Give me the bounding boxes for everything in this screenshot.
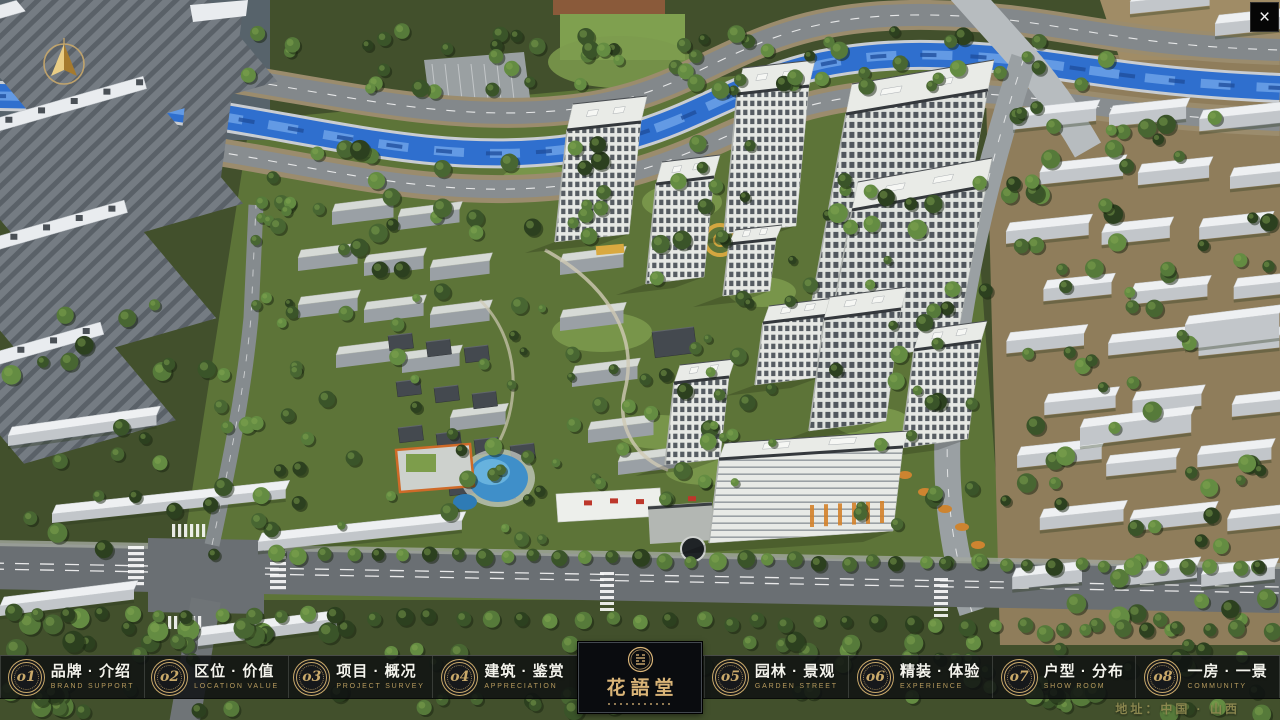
- nav-item-subtitle: LOCATION VALUE: [194, 683, 279, 690]
- nav-item-number: o1: [17, 669, 36, 685]
- aerial-masterplan-render: [0, 0, 1280, 720]
- nav-item-number: o7: [1010, 669, 1029, 685]
- nav-item-title: 项目 · 概况: [336, 664, 416, 681]
- nav-item-number-badge: o5: [715, 662, 746, 693]
- nav-item-title: 一房 · 一景: [1187, 664, 1267, 681]
- nav-item-text: 区位 · 价值 LOCATION VALUE: [194, 664, 279, 691]
- nav-item-7[interactable]: o7 户型 · 分布 SHOW ROOM: [992, 656, 1136, 698]
- nav-item-title: 区位 · 价值: [194, 664, 274, 681]
- nav-group-left: o1 品牌 · 介绍 BRAND SUPPORT o2 区位 · 价值 LOCA…: [0, 656, 576, 698]
- nav-group-right: o5 园林 · 景观 GARDEN STREET o6 精装 · 体验 EXPE…: [704, 656, 1280, 698]
- nav-item-5[interactable]: o5 园林 · 景观 GARDEN STREET: [704, 656, 848, 698]
- nav-item-title: 精装 · 体验: [900, 664, 980, 681]
- nav-item-4[interactable]: o4 建筑 · 鉴赏 APPRECIATION: [432, 656, 576, 698]
- project-address: 地址：中国 · 山西: [1115, 700, 1240, 717]
- nav-item-number-badge: o6: [860, 662, 891, 693]
- nav-item-number-badge: o2: [154, 662, 185, 693]
- nav-item-3[interactable]: o3 项目 · 概况 PROJECT SURVEY: [288, 656, 432, 698]
- nav-item-number: o3: [302, 669, 321, 685]
- nav-item-number: o6: [866, 669, 885, 685]
- project-name: 花語堂: [601, 673, 678, 700]
- nav-item-6[interactable]: o6 精装 · 体验 EXPERIENCE: [848, 656, 992, 698]
- nav-item-number-badge: o7: [1004, 662, 1035, 693]
- project-logo-panel: 花語堂: [578, 642, 702, 713]
- nav-item-text: 户型 · 分布 SHOW ROOM: [1044, 664, 1124, 691]
- nav-item-number-badge: o1: [11, 662, 42, 693]
- nav-item-text: 一房 · 一景 COMMUNITY: [1187, 664, 1267, 691]
- nav-item-subtitle: GARDEN STREET: [755, 683, 838, 690]
- close-button[interactable]: ×: [1250, 2, 1279, 32]
- nav-item-subtitle: SHOW ROOM: [1044, 683, 1106, 690]
- project-name-subtitle-line: [608, 703, 672, 705]
- nav-item-number-badge: o4: [444, 662, 475, 693]
- nav-item-text: 园林 · 景观 GARDEN STREET: [755, 664, 838, 691]
- nav-item-title: 园林 · 景观: [755, 664, 835, 681]
- nav-item-number: o8: [1153, 669, 1172, 685]
- nav-item-text: 项目 · 概况 PROJECT SURVEY: [336, 664, 424, 691]
- project-seal-icon: [627, 646, 654, 673]
- nav-item-subtitle: EXPERIENCE: [900, 683, 963, 690]
- nav-item-text: 品牌 · 介绍 BRAND SUPPORT: [51, 664, 135, 691]
- nav-item-title: 建筑 · 鉴赏: [484, 664, 564, 681]
- nav-item-number: o5: [721, 669, 740, 685]
- nav-item-title: 品牌 · 介绍: [51, 664, 131, 681]
- presentation-window: × o1 品牌 · 介绍 BRAND SUPPORT o2 区位 · 价值 LO…: [0, 0, 1280, 720]
- close-icon: ×: [1259, 8, 1270, 27]
- nav-item-subtitle: APPRECIATION: [484, 683, 557, 690]
- nav-item-subtitle: COMMUNITY: [1187, 683, 1246, 690]
- nav-item-number-badge: o8: [1147, 662, 1178, 693]
- nav-item-number: o4: [450, 669, 469, 685]
- nav-item-text: 建筑 · 鉴赏 APPRECIATION: [484, 664, 564, 691]
- nav-item-subtitle: BRAND SUPPORT: [51, 683, 135, 690]
- nav-item-number: o2: [160, 669, 179, 685]
- nav-item-title: 户型 · 分布: [1044, 664, 1124, 681]
- nav-item-8[interactable]: o8 一房 · 一景 COMMUNITY: [1135, 656, 1280, 698]
- nav-item-number-badge: o3: [296, 662, 327, 693]
- nav-item-1[interactable]: o1 品牌 · 介绍 BRAND SUPPORT: [0, 656, 144, 698]
- compass-icon: [36, 34, 92, 90]
- nav-item-2[interactable]: o2 区位 · 价值 LOCATION VALUE: [144, 656, 288, 698]
- nav-item-subtitle: PROJECT SURVEY: [336, 683, 424, 690]
- nav-item-text: 精装 · 体验 EXPERIENCE: [900, 664, 980, 691]
